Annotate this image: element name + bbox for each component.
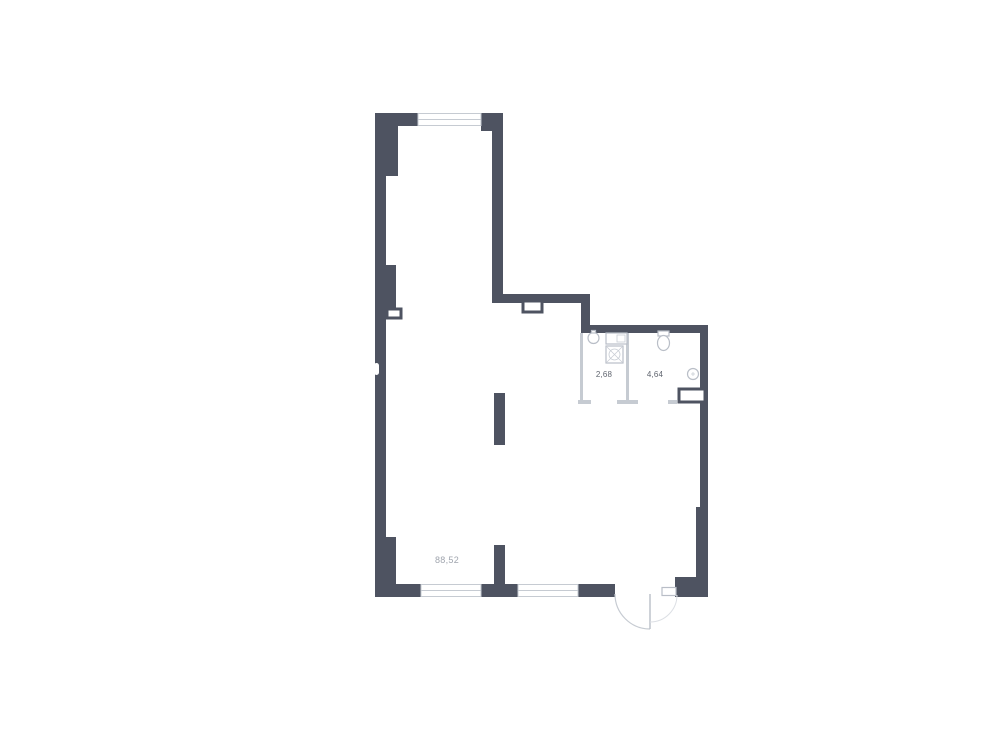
entrance-door bbox=[615, 588, 677, 630]
outer-walls bbox=[375, 113, 708, 597]
bottom-wall-segment-1 bbox=[375, 584, 421, 597]
right-wall-upper bbox=[700, 325, 708, 510]
upper-right-wall bbox=[492, 126, 503, 302]
window-bottom-left bbox=[421, 585, 481, 597]
left-wall-notch bbox=[374, 363, 379, 375]
bottom-wall-segment-3 bbox=[578, 584, 615, 597]
toilet-icon bbox=[658, 331, 670, 351]
floor-plan-canvas: 88,52 2,68 4,64 bbox=[0, 0, 1000, 750]
wc-area-label: 4,64 bbox=[647, 370, 664, 379]
wall-niche-icon bbox=[387, 309, 401, 318]
riser-icon bbox=[688, 369, 699, 380]
window-bottom-right bbox=[518, 585, 578, 597]
interior-wall-stub-upper bbox=[494, 393, 505, 445]
partition-bathroom-left bbox=[580, 333, 583, 400]
partition-foot-left bbox=[578, 400, 591, 404]
bottom-right-corner bbox=[675, 577, 708, 597]
partition-foot-mid bbox=[617, 400, 638, 404]
interior-wall-stub-lower bbox=[494, 545, 505, 585]
vent-shaft-right-icon bbox=[679, 389, 705, 402]
bathroom-top-wall bbox=[581, 325, 708, 333]
labels: 88,52 2,68 4,64 bbox=[435, 370, 664, 565]
door-narrow-leaf bbox=[662, 588, 676, 596]
main-room-area-label: 88,52 bbox=[435, 555, 459, 565]
pilaster-mid-left bbox=[386, 265, 396, 308]
interior-walls bbox=[386, 118, 505, 585]
ducts bbox=[374, 301, 705, 402]
bathroom-area-label: 2,68 bbox=[596, 370, 613, 379]
floor-plan-drawing: 88,52 2,68 4,64 bbox=[0, 0, 1000, 750]
pilaster-bottom-left bbox=[386, 537, 396, 585]
vent-shaft-top-icon bbox=[523, 301, 542, 312]
partition-foot-right bbox=[668, 400, 677, 404]
bottom-wall-segment-2 bbox=[481, 584, 518, 597]
washing-machine-icon bbox=[606, 346, 623, 363]
window-top bbox=[418, 114, 481, 126]
sink-counter-icon bbox=[606, 333, 627, 344]
pilaster-top-left bbox=[386, 118, 398, 176]
door-swing-arc-secondary bbox=[650, 595, 677, 622]
left-wall bbox=[375, 113, 386, 597]
door-swing-arc bbox=[615, 594, 650, 629]
right-wall-lower bbox=[696, 507, 708, 587]
